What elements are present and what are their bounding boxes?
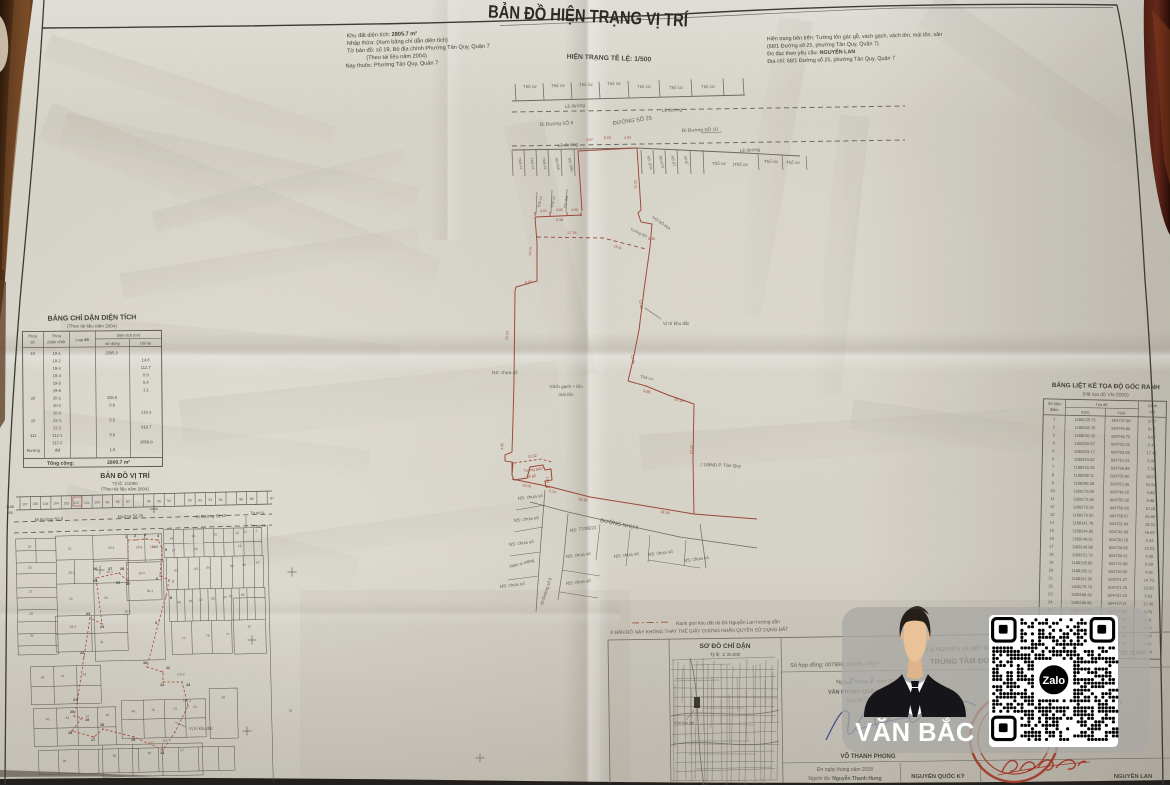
svg-text:84: 84 [223,595,227,599]
svg-text:Tỷ lệ: 1/ 20.000: Tỷ lệ: 1/ 20.000 [710,652,741,657]
svg-text:9.38: 9.38 [556,218,563,222]
svg-text:0.34: 0.34 [1146,538,1155,543]
svg-text:mái tôn: mái tôn [558,392,574,397]
svg-text:85: 85 [229,594,233,598]
svg-text:Tỷ lệ: 1/1000: Tỷ lệ: 1/1000 [112,481,138,486]
svg-text:1188148.81: 1188148.81 [1072,536,1094,541]
svg-text:112-1: 112-1 [52,433,63,438]
svg-text:5.39: 5.39 [1147,458,1156,463]
svg-text:89: 89 [239,497,243,501]
svg-text:604762.94: 604762.94 [1109,521,1129,526]
svg-text:0.4: 0.4 [143,380,149,385]
svg-text:18.34: 18.34 [1145,522,1156,527]
svg-text:65: 65 [230,564,234,568]
svg-text:Tờ số 5: Tờ số 5 [250,510,265,515]
svg-text:95: 95 [157,499,161,503]
svg-text:90: 90 [219,498,223,502]
svg-text:19: 19 [85,718,89,722]
svg-text:Đường Số 25: Đường Số 25 [118,513,144,519]
svg-text:2: 2 [134,534,136,538]
svg-text:Vách gạch + tôn: Vách gạch + tôn [549,384,583,389]
svg-text:0.9: 0.9 [143,372,149,377]
svg-text:1188215.28: 1188215.28 [1074,465,1096,470]
svg-text:40: 40 [41,675,45,679]
svg-text:63: 63 [194,567,198,571]
svg-text:1188235.78: 1188235.78 [1074,425,1096,430]
svg-text:100: 100 [94,501,100,505]
svg-text:604749.20: 604749.20 [1110,489,1130,494]
svg-text:3: 3 [144,533,146,537]
svg-text:2.45: 2.45 [1148,442,1157,447]
svg-text:1188233.17: 1188233.17 [1074,449,1096,454]
svg-text:29: 29 [30,634,34,638]
svg-text:1188198.28: 1188198.28 [1073,481,1095,486]
svg-text:77: 77 [226,632,230,636]
svg-text:22-1: 22-1 [53,418,62,423]
svg-text:10.23: 10.23 [1144,546,1155,551]
svg-text:6.62: 6.62 [1148,434,1157,439]
svg-text:102: 102 [74,501,80,505]
svg-text:604727.21: 604727.21 [1108,601,1128,606]
svg-text:20-3: 20-3 [108,546,115,550]
svg-text:604746.70: 604746.70 [1111,434,1131,439]
svg-text:42: 42 [83,672,87,676]
svg-text:19-5: 19-5 [138,571,145,575]
svg-text:5.9: 5.9 [109,432,115,437]
svg-text:75: 75 [182,636,186,640]
svg-text:Thổ cư: Thổ cư [579,82,593,87]
svg-text:17: 17 [91,738,95,742]
svg-text:10.18: 10.18 [1145,506,1156,511]
svg-text:Vị trí khu đất: Vị trí khu đất [663,321,690,326]
svg-text:91: 91 [209,498,213,502]
svg-text:1188151.73: 1188151.73 [1072,552,1094,557]
svg-text:604737.08: 604737.08 [1112,418,1132,423]
svg-text:62: 62 [174,568,178,572]
svg-text:14.6: 14.6 [142,357,151,362]
svg-text:10.02: 10.02 [1146,474,1157,479]
svg-text:NGUYỄN LAN: NGUYỄN LAN [1114,773,1152,780]
svg-text:1188172.02: 1188172.02 [1073,504,1095,509]
svg-text:5.5: 5.5 [109,417,115,422]
svg-text:Cạnh: Cạnh [1148,403,1157,408]
svg-text:9.98: 9.98 [1146,498,1155,503]
svg-text:Thổ cư: Thổ cư [669,85,683,90]
svg-text:604721.27: 604721.27 [1108,577,1128,582]
svg-text:16.92: 16.92 [1145,530,1156,535]
svg-text:20: 20 [70,710,74,714]
svg-text:3658.8: 3658.8 [140,439,153,444]
svg-text:918.7: 918.7 [141,424,152,429]
svg-text:41: 41 [61,674,65,678]
svg-text:15: 15 [131,738,135,742]
svg-text:101: 101 [84,501,90,505]
svg-text:88: 88 [250,497,254,501]
svg-text:20-3: 20-3 [53,410,62,415]
svg-text:Thổ cư: Thổ cư [764,159,778,164]
svg-text:604755.90: 604755.90 [1110,473,1130,478]
svg-text:64: 64 [206,566,210,570]
svg-text:6.07: 6.07 [1148,426,1157,431]
svg-text:1188161.00: 1188161.00 [1071,576,1093,581]
svg-text:18: 18 [68,731,72,735]
svg-text:83: 83 [211,597,215,601]
svg-text:Thổ cư: Thổ cư [607,81,621,86]
svg-text:26.96: 26.96 [1145,514,1156,519]
svg-text:24: 24 [69,597,73,601]
svg-text:Thổ cư: Thổ cư [786,160,800,165]
svg-text:20-3: 20-3 [136,545,143,549]
svg-text:20-2: 20-2 [68,571,75,575]
svg-text:30-1: 30-1 [147,589,154,593]
svg-text:19-4: 19-4 [53,373,62,378]
svg-text:50: 50 [152,708,156,712]
svg-text:19-2: 19-2 [148,741,155,745]
svg-text:1188236.43: 1188236.43 [1074,433,1096,438]
svg-text:12: 12 [160,683,164,687]
svg-text:Đi Đường Số 8: Đi Đường Số 8 [35,516,64,522]
svg-text:604740.66: 604740.66 [1111,426,1131,431]
svg-text:19-3: 19-3 [53,366,62,371]
svg-text:23: 23 [104,596,108,600]
svg-text:57: 57 [180,748,184,752]
svg-text:20.03: 20.03 [689,445,693,454]
svg-text:19-2: 19-2 [53,358,62,363]
svg-text:98: 98 [116,500,120,504]
svg-text:điểm: điểm [1050,407,1059,412]
svg-text:112.7: 112.7 [141,365,152,370]
svg-text:1188236.57: 1188236.57 [1074,441,1096,446]
svg-text:22: 22 [28,545,32,549]
svg-text:4.95: 4.95 [1145,570,1154,575]
svg-text:52: 52 [193,705,197,709]
svg-text:18: 18 [194,547,198,551]
svg-text:20: 20 [31,396,36,401]
svg-text:94: 94 [167,499,171,503]
svg-text:27: 27 [29,590,33,594]
svg-text:23.50: 23.50 [1144,585,1155,590]
svg-text:1188215.82: 1188215.82 [1074,457,1096,462]
svg-text:106: 106 [32,502,38,506]
svg-text:11: 11 [244,530,248,534]
svg-text:30: 30 [126,582,130,586]
svg-text:Đo ngày tháng năm 2018: Đo ngày tháng năm 2018 [817,767,873,773]
svg-text:NS: chưa số: NS: chưa số [492,370,518,375]
svg-text:76: 76 [289,709,293,713]
svg-text:17.78: 17.78 [567,231,577,235]
svg-text:27: 27 [108,567,112,571]
svg-text:3.57: 3.57 [1148,418,1157,423]
svg-text:58: 58 [221,695,225,699]
svg-text:208.5: 208.5 [107,395,118,400]
svg-text:(Theo tài liệu năm 2004): (Theo tài liệu năm 2004) [67,324,117,329]
svg-text:Y(m): Y(m) [1117,410,1126,415]
svg-text:604730.18: 604730.18 [1109,537,1129,542]
svg-text:19-5: 19-5 [53,381,62,386]
svg-text:49: 49 [132,709,136,713]
svg-text:22-2: 22-2 [53,425,62,430]
svg-text:1: 1 [125,535,127,539]
svg-text:604755.68: 604755.68 [1110,497,1130,502]
svg-text:219.3: 219.3 [141,410,152,415]
svg-text:48: 48 [106,713,110,717]
svg-text:51: 51 [174,706,178,710]
svg-text:Zalo: Zalo [1042,675,1065,687]
svg-text:1188175.70: 1188175.70 [1071,584,1093,589]
svg-text:25: 25 [93,579,97,583]
svg-text:(m): (m) [1149,409,1156,414]
svg-text:7.30: 7.30 [1147,466,1156,471]
svg-text:22: 22 [80,651,84,655]
svg-text:1188148.88: 1188148.88 [1072,544,1094,549]
svg-text:604746.56: 604746.56 [1109,529,1129,534]
svg-text:17.45: 17.45 [1143,601,1154,606]
svg-text:21: 21 [68,547,72,551]
svg-text:604756.68: 604756.68 [1110,505,1130,510]
svg-text:23.54: 23.54 [1146,482,1157,487]
svg-text:Thửa: Thửa [28,333,38,338]
svg-text:13: 13 [238,544,242,548]
svg-text:2800.7 m²: 2800.7 m² [107,460,130,466]
svg-text:1188199.20: 1188199.20 [1071,592,1093,597]
svg-text:20-1: 20-1 [53,395,62,400]
svg-text:1188: 1188 [6,505,14,509]
svg-text:13: 13 [186,683,190,687]
svg-text:604729.83: 604729.83 [1109,545,1129,550]
svg-text:15: 15 [214,532,218,536]
svg-text:7: 7 [172,580,174,584]
svg-text:5.30: 5.30 [648,237,655,241]
svg-text:Người đo: Nguyễn Thanh Hưng: Người đo: Nguyễn Thanh Hưng [808,775,881,782]
svg-text:19-1: 19-1 [124,609,131,613]
svg-text:604758.67: 604758.67 [1110,513,1130,518]
svg-text:9: 9 [155,621,157,625]
svg-text:8: 8 [170,596,172,600]
svg-text:1188156.11: 1188156.11 [1072,568,1093,573]
svg-text:31: 31 [100,640,104,644]
svg-text:604753.56: 604753.56 [1111,450,1131,455]
svg-text:67: 67 [256,560,260,564]
svg-text:1188235.73: 1188235.73 [1075,417,1097,422]
svg-text:12.11: 12.11 [633,180,638,189]
svg-text:96: 96 [147,500,151,504]
svg-text:2595.3: 2595.3 [105,350,118,355]
svg-text:4.93: 4.93 [624,136,631,140]
svg-text:107: 107 [22,502,28,506]
svg-text:11: 11 [166,666,170,670]
svg-text:604753.36: 604753.36 [1110,481,1130,486]
svg-text:4.00: 4.00 [556,208,563,212]
svg-text:|Thổ cư: |Thổ cư [733,162,748,167]
svg-text:19-4: 19-4 [150,545,157,549]
svg-text:Vị trí khu đất: Vị trí khu đất [189,726,213,731]
svg-text:6.88: 6.88 [1147,490,1156,495]
svg-text:112-2: 112-2 [177,672,185,676]
svg-text:VĂN BẮC: VĂN BẮC [855,717,975,747]
svg-text:604756.88: 604756.88 [1111,465,1131,470]
svg-text:X(m): X(m) [1081,410,1090,415]
svg-text:10: 10 [192,534,196,538]
svg-text:19-6: 19-6 [53,388,62,393]
svg-text:82: 82 [199,598,203,602]
svg-text:Diện tích (m²): Diện tích (m²) [117,333,141,338]
svg-text:Thổ cư: Thổ cư [712,161,726,166]
svg-text:76: 76 [206,634,210,638]
svg-text:92: 92 [198,498,202,502]
svg-text:sử dụng: sử dụng [105,341,119,346]
svg-text:5.93: 5.93 [1144,593,1153,598]
svg-text:103: 103 [63,501,69,505]
svg-text:1.9: 1.9 [110,447,116,452]
svg-text:112: 112 [30,433,37,438]
svg-text:80: 80 [177,600,181,604]
svg-text:604730.01: 604730.01 [1109,553,1129,558]
svg-text:4.38: 4.38 [1145,554,1154,559]
svg-text:29: 29 [116,581,120,585]
svg-text:604753.32: 604753.32 [1111,442,1131,447]
svg-text:5.03: 5.03 [604,136,611,140]
svg-text:604720.50: 604720.50 [1108,569,1128,574]
svg-text:66: 66 [242,563,246,567]
svg-text:97: 97 [126,500,130,504]
svg-text:NGUYỄN QUỐC KỲ: NGUYỄN QUỐC KỲ [911,773,965,780]
svg-text:1188172.86: 1188172.86 [1073,496,1095,501]
svg-text:5: 5 [255,529,257,533]
svg-text:4.00: 4.00 [571,208,578,212]
svg-text:17: 17 [172,548,176,552]
svg-text:14.75: 14.75 [528,247,533,256]
svg-text:12: 12 [236,531,240,535]
svg-text:604731.33: 604731.33 [1108,593,1128,598]
svg-text:19: 19 [30,351,35,356]
svg-text:1188175.05: 1188175.05 [1073,488,1095,493]
svg-text:23: 23 [86,612,90,616]
svg-text:10: 10 [143,661,147,665]
svg-text:14.70: 14.70 [1144,577,1155,582]
svg-text:Thổ cư: Thổ cư [523,84,537,89]
svg-text:0.6: 0.6 [109,402,115,407]
svg-text:26: 26 [93,567,97,571]
svg-text:36: 36 [63,759,67,763]
svg-text:38: 38 [113,754,117,758]
svg-text:604751.51: 604751.51 [1111,457,1131,462]
svg-text:5: 5 [165,548,167,552]
svg-text:Thổ cư: Thổ cư [701,84,715,89]
svg-text:112-2: 112-2 [52,440,63,445]
svg-text:46: 46 [46,717,50,721]
svg-text:6: 6 [156,577,158,581]
svg-text:112-1: 112-1 [183,699,191,703]
svg-text:còn lại: còn lại [140,340,151,345]
svg-text:105: 105 [43,502,49,506]
svg-text:44: 44 [66,716,70,720]
svg-text:14: 14 [170,536,174,540]
svg-text:VÕ THANH PHONG: VÕ THANH PHONG [840,753,895,760]
svg-text:4.01: 4.01 [540,209,547,213]
svg-text:1.1: 1.1 [143,387,149,392]
svg-text:17.46: 17.46 [1146,450,1157,455]
svg-text:(Hệ tọa độ VN-2000): (Hệ tọa độ VN-2000) [1082,392,1129,399]
svg-text:1188199.86: 1188199.86 [1071,600,1093,605]
svg-text:39: 39 [148,751,152,755]
svg-text:Vị trí khu đất: Vị trí khu đất [674,721,694,725]
svg-text:1188141.78: 1188141.78 [1072,520,1094,525]
svg-text:104: 104 [53,502,59,506]
svg-text:23-1: 23-1 [70,625,77,629]
svg-text:87: 87 [248,625,252,629]
svg-text:28: 28 [29,612,33,616]
svg-text:20.03: 20.03 [505,331,509,340]
svg-text:250: 250 [7,511,13,515]
svg-text:3.57: 3.57 [586,138,593,142]
svg-text:phân chiết: phân chiết [47,339,66,344]
svg-text:86: 86 [241,593,245,597]
svg-text:Thửa: Thửa [52,333,62,338]
svg-text:19-1: 19-1 [52,351,61,356]
svg-text:25: 25 [28,566,32,570]
svg-text:604721.96: 604721.96 [1109,561,1129,566]
svg-text:1188170.00: 1188170.00 [1073,512,1095,517]
svg-text:113: 113 [162,739,167,743]
svg-text:1188144.65: 1188144.65 [1072,528,1094,533]
svg-text:81: 81 [189,599,193,603]
svg-text:(Theo tài liệu năm 2004): (Theo tài liệu năm 2004) [101,487,149,492]
svg-text:0.59: 0.59 [1145,562,1154,567]
svg-text:Thổ cư: Thổ cư [551,83,565,88]
svg-text:4.05: 4.05 [500,443,504,450]
svg-text:Tọa độ: Tọa độ [1095,402,1107,407]
svg-text:28: 28 [120,567,124,571]
svg-text:604721.76: 604721.76 [1108,585,1128,590]
svg-text:Số hiệu: Số hiệu [1048,401,1061,406]
svg-text:Thổ cư: Thổ cư [637,84,651,89]
svg-text:Loại đất: Loại đất [76,337,91,342]
svg-text:16: 16 [100,723,104,727]
svg-text:21: 21 [73,698,77,702]
svg-text:1188208.11: 1188208.11 [1074,473,1095,478]
svg-text:đ/đ: đ/đ [55,448,61,453]
svg-text:22: 22 [31,418,36,423]
svg-text:1188155.96: 1188155.96 [1072,560,1094,565]
svg-text:87: 87 [270,497,274,501]
svg-text:Tờ số 19: Tờ số 19 [250,523,267,528]
svg-text:20-2: 20-2 [53,403,62,408]
svg-text:93: 93 [188,499,192,503]
svg-text:99: 99 [106,500,110,504]
svg-text:Tổng cộng:: Tổng cộng: [47,460,75,467]
svg-text:Đường: Đường [27,448,41,453]
